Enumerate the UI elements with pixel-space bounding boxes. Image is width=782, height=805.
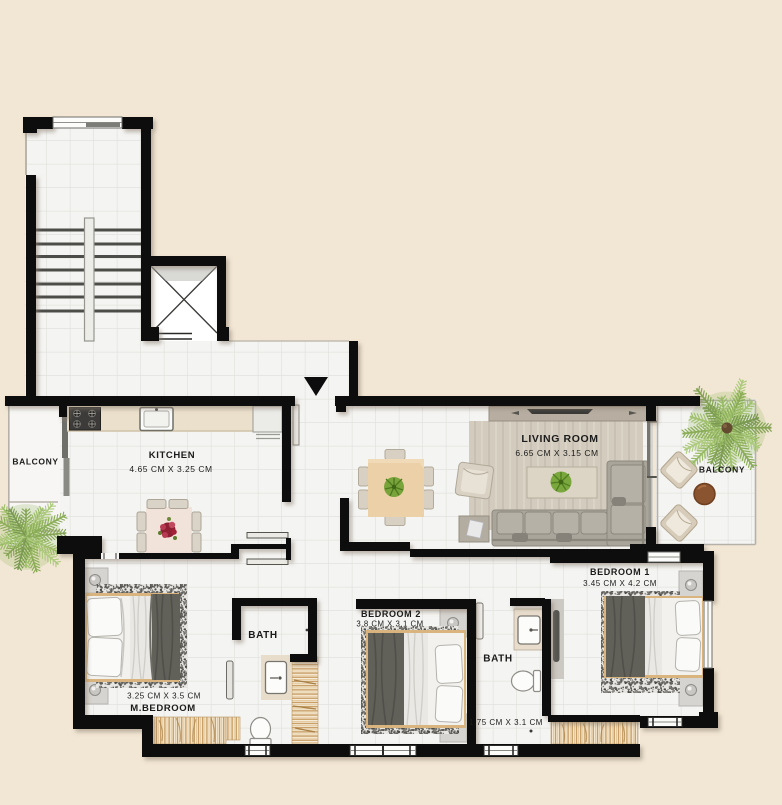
svg-text:BEDROOM 2: BEDROOM 2 xyxy=(361,609,421,619)
svg-text:BALCONY: BALCONY xyxy=(699,465,745,475)
svg-text:M.BEDROOM: M.BEDROOM xyxy=(130,703,196,714)
svg-text:BATH: BATH xyxy=(483,654,512,665)
svg-text:BEDROOM 1: BEDROOM 1 xyxy=(590,567,650,577)
svg-text:3.8 CM X 3.1 CM: 3.8 CM X 3.1 CM xyxy=(356,620,423,629)
svg-text:3.45 CM X 4.2 CM: 3.45 CM X 4.2 CM xyxy=(583,579,657,588)
svg-text:6.65 CM X 3.15 CM: 6.65 CM X 3.15 CM xyxy=(515,448,598,458)
svg-text:3.25 CM X 3.5 CM: 3.25 CM X 3.5 CM xyxy=(127,692,201,701)
svg-text:1.75 CM X 3.1 CM: 1.75 CM X 3.1 CM xyxy=(469,718,543,727)
svg-text:LIVING ROOM: LIVING ROOM xyxy=(521,433,598,445)
svg-text:BALCONY: BALCONY xyxy=(12,457,58,467)
svg-text:KITCHEN: KITCHEN xyxy=(149,450,195,461)
svg-text:4.65 CM X 3.25 CM: 4.65 CM X 3.25 CM xyxy=(129,464,212,474)
svg-text:BATH: BATH xyxy=(248,630,277,641)
